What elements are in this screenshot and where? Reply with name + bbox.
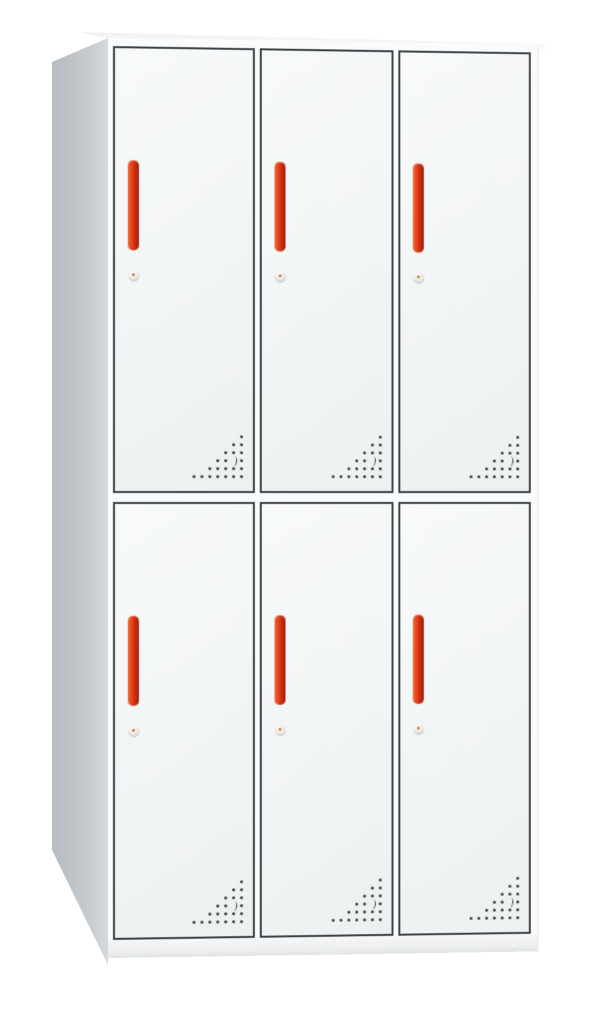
door-handle <box>128 616 139 706</box>
key-lock <box>414 724 424 734</box>
door-handle <box>275 615 286 705</box>
vent-dots <box>240 880 243 883</box>
vent-dots <box>516 877 519 880</box>
vent-crescent-slot <box>369 456 376 466</box>
vent-pattern <box>470 877 520 920</box>
vent-dots <box>379 878 382 881</box>
vent-pattern <box>193 880 243 924</box>
key-lock <box>129 726 139 736</box>
doors-grid <box>113 46 531 940</box>
vent-pattern <box>332 435 382 478</box>
door-handle <box>413 615 424 704</box>
vent-pattern <box>332 878 382 921</box>
vent-crescent-slot <box>369 899 376 909</box>
locker-door <box>260 502 394 938</box>
vent-pattern <box>193 435 243 478</box>
door-handle <box>128 160 139 250</box>
vent-pattern <box>470 436 520 479</box>
vent-dots <box>379 436 382 439</box>
locker-door <box>113 502 255 940</box>
door-handle <box>413 163 424 252</box>
vent-crescent-slot <box>507 456 514 466</box>
key-lock <box>414 272 424 282</box>
cabinet-side-panel <box>52 38 108 965</box>
vent-crescent-slot <box>507 897 514 907</box>
vent-dots <box>516 436 519 439</box>
door-handle <box>275 162 286 252</box>
vent-crescent-slot <box>231 901 238 911</box>
locker-door <box>398 50 530 493</box>
key-lock <box>129 270 139 280</box>
key-lock <box>276 725 286 735</box>
locker-door <box>113 46 255 493</box>
product-photo <box>0 0 605 1009</box>
cabinet-front-face <box>108 38 539 958</box>
vent-crescent-slot <box>231 456 238 467</box>
locker-door <box>260 48 394 493</box>
vent-dots <box>240 435 243 438</box>
key-lock <box>276 271 286 281</box>
locker-door <box>398 502 530 936</box>
